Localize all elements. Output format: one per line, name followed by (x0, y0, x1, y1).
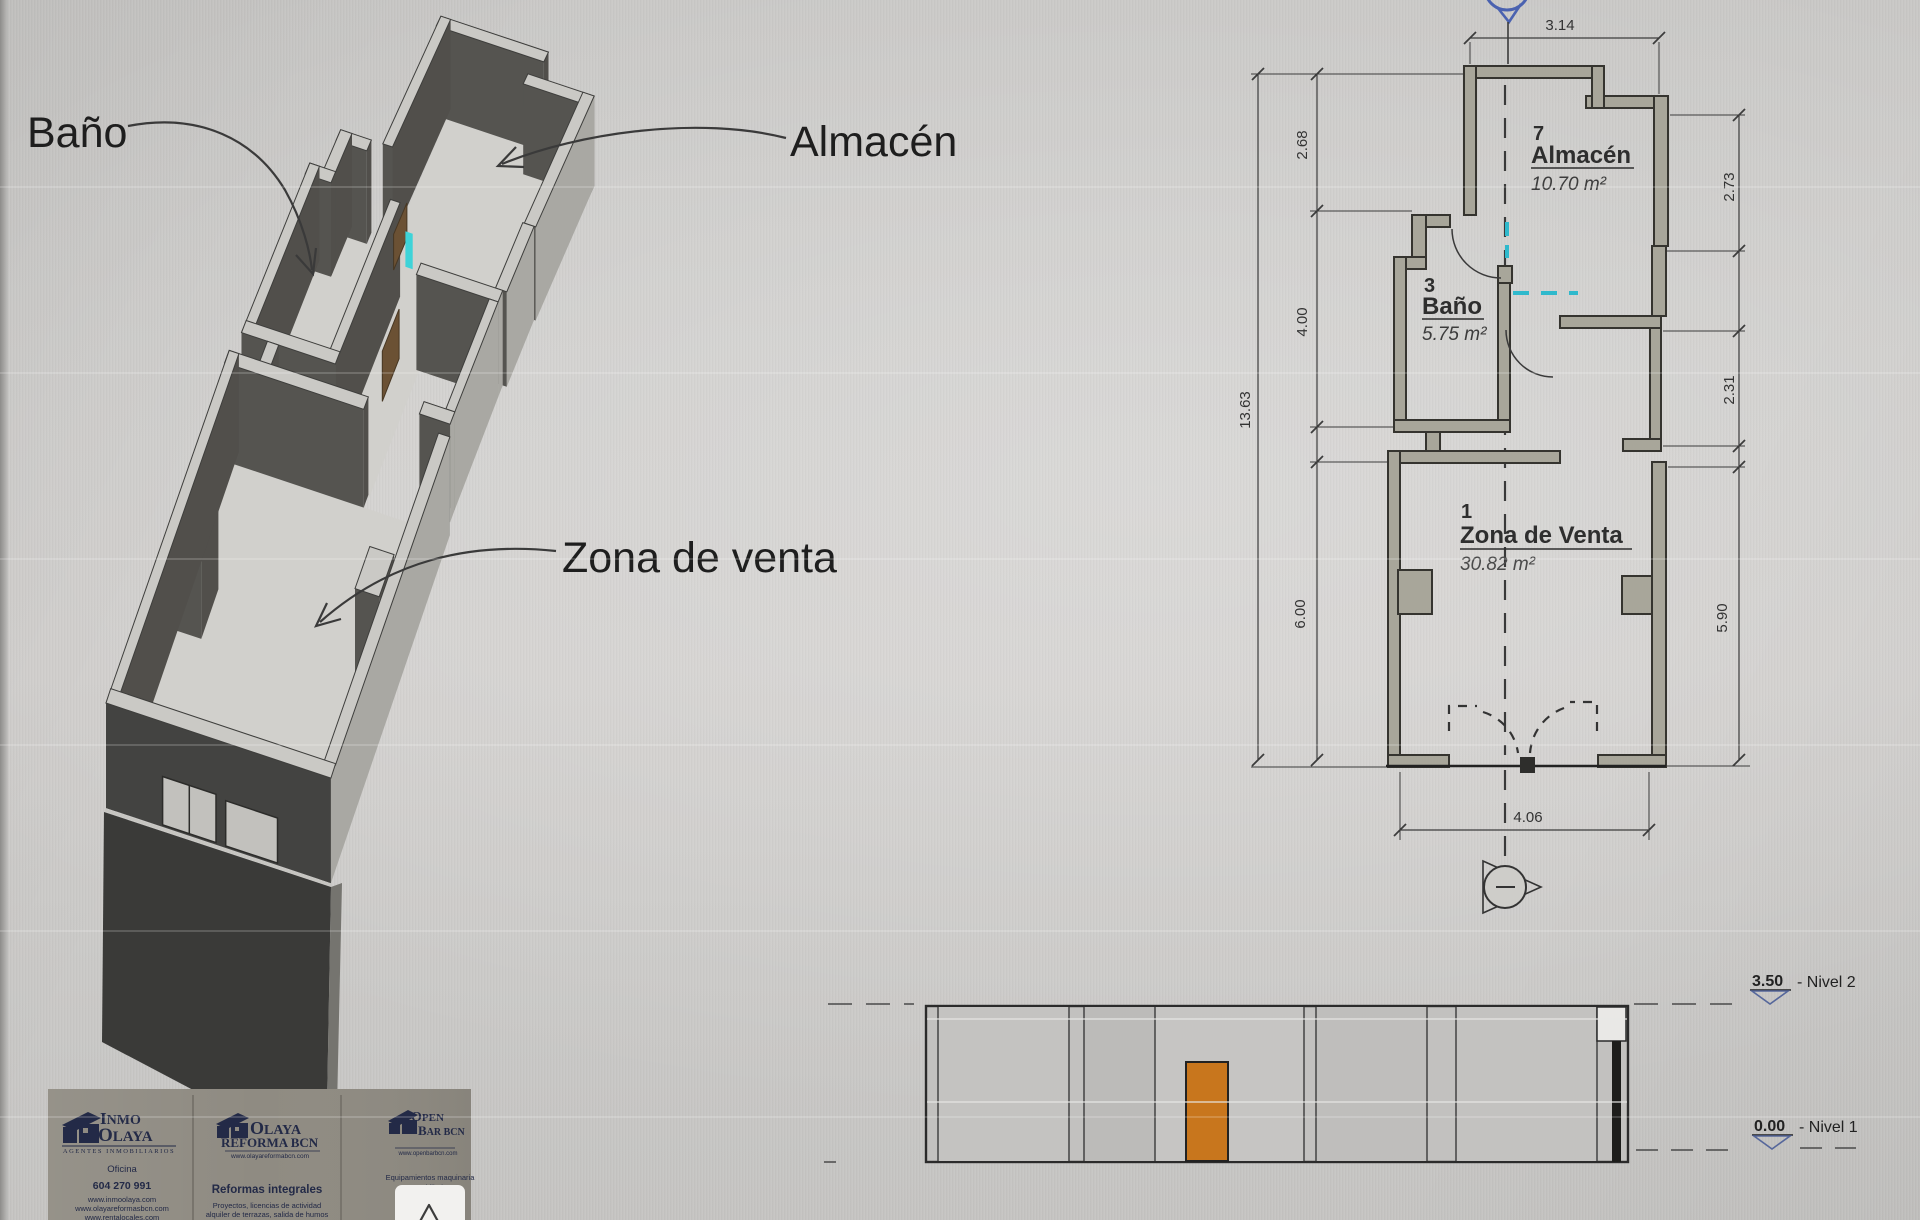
svg-text:604 270 991: 604 270 991 (93, 1180, 152, 1192)
svg-text:Baño: Baño (1422, 293, 1482, 320)
svg-text:Proyectos, licencias de activi: Proyectos, licencias de actividad (213, 1201, 321, 1210)
svg-text:5.75 m²: 5.75 m² (1422, 324, 1487, 345)
svg-text:5.90: 5.90 (1714, 603, 1731, 632)
svg-text:Zona de Venta: Zona de Venta (1460, 522, 1623, 549)
svg-text:www.olayareformasbcn.com: www.olayareformasbcn.com (74, 1204, 169, 1213)
svg-text:2.68: 2.68 (1294, 130, 1311, 159)
svg-text:- Nivel 1: - Nivel 1 (1799, 1119, 1858, 1136)
svg-text:Equipamientos maquinaria: Equipamientos maquinaria (386, 1173, 476, 1182)
svg-text:6.00: 6.00 (1292, 599, 1309, 628)
svg-text:Baño: Baño (27, 109, 127, 157)
svg-text:2.31: 2.31 (1721, 375, 1738, 404)
svg-text:0.00: 0.00 (1754, 1118, 1785, 1135)
svg-text:www.inmoolaya.com: www.inmoolaya.com (87, 1195, 156, 1204)
svg-text:4.00: 4.00 (1294, 307, 1311, 336)
svg-text:10.70 m²: 10.70 m² (1531, 174, 1607, 195)
svg-text:- Nivel 2: - Nivel 2 (1797, 974, 1856, 991)
svg-text:3.14: 3.14 (1545, 17, 1574, 34)
svg-text:Oficina: Oficina (107, 1164, 137, 1175)
svg-text:30.82 m²: 30.82 m² (1460, 554, 1536, 575)
svg-text:Almacén: Almacén (790, 118, 957, 166)
svg-text:www.rentalocales.com: www.rentalocales.com (84, 1213, 160, 1220)
svg-text:www.olayareformabcn.com: www.olayareformabcn.com (230, 1153, 309, 1160)
svg-text:www.openbarbcn.com: www.openbarbcn.com (397, 1151, 457, 1157)
svg-text:alquiler de terrazas, salida d: alquiler de terrazas, salida de humos (206, 1210, 329, 1219)
svg-text:OLAYA: OLAYA (98, 1125, 153, 1146)
svg-text:4.06: 4.06 (1513, 809, 1542, 826)
svg-text:1: 1 (1461, 501, 1472, 523)
svg-text:Zona de venta: Zona de venta (562, 534, 837, 582)
svg-text:Almacén: Almacén (1531, 142, 1631, 169)
svg-text:REFORMA BCN: REFORMA BCN (221, 1135, 319, 1150)
svg-text:13.63: 13.63 (1237, 391, 1254, 429)
svg-text:Reformas integrales: Reformas integrales (212, 1184, 323, 1196)
svg-text:3.50: 3.50 (1752, 973, 1783, 990)
svg-text:AGENTES INMOBILIARIOS: AGENTES INMOBILIARIOS (63, 1148, 175, 1155)
